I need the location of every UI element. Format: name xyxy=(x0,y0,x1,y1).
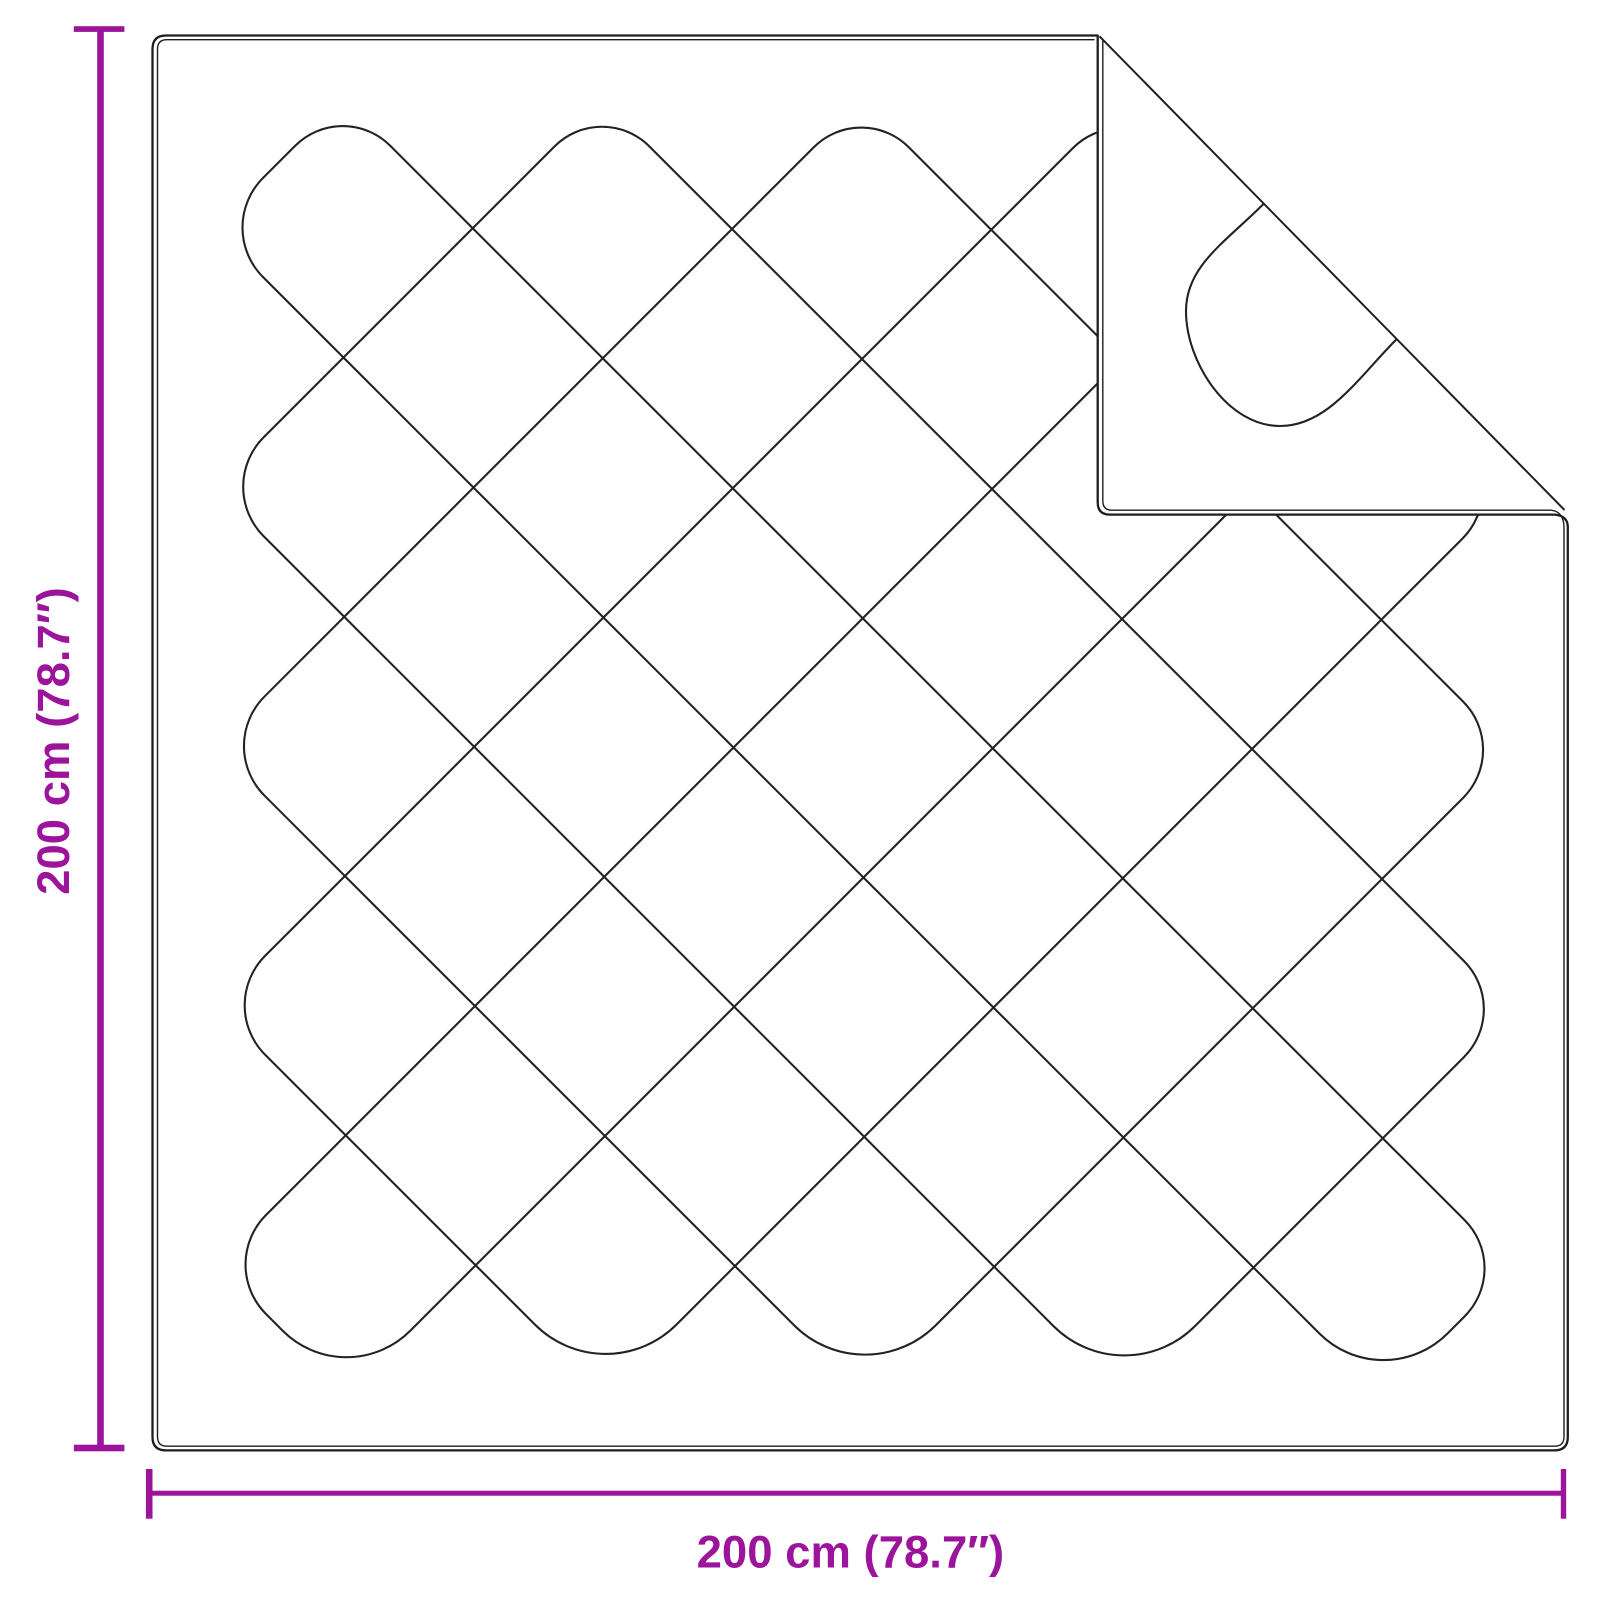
svg-text:200 cm (78.7″): 200 cm (78.7″) xyxy=(697,1526,1005,1577)
svg-text:200 cm (78.7″): 200 cm (78.7″) xyxy=(28,587,79,895)
